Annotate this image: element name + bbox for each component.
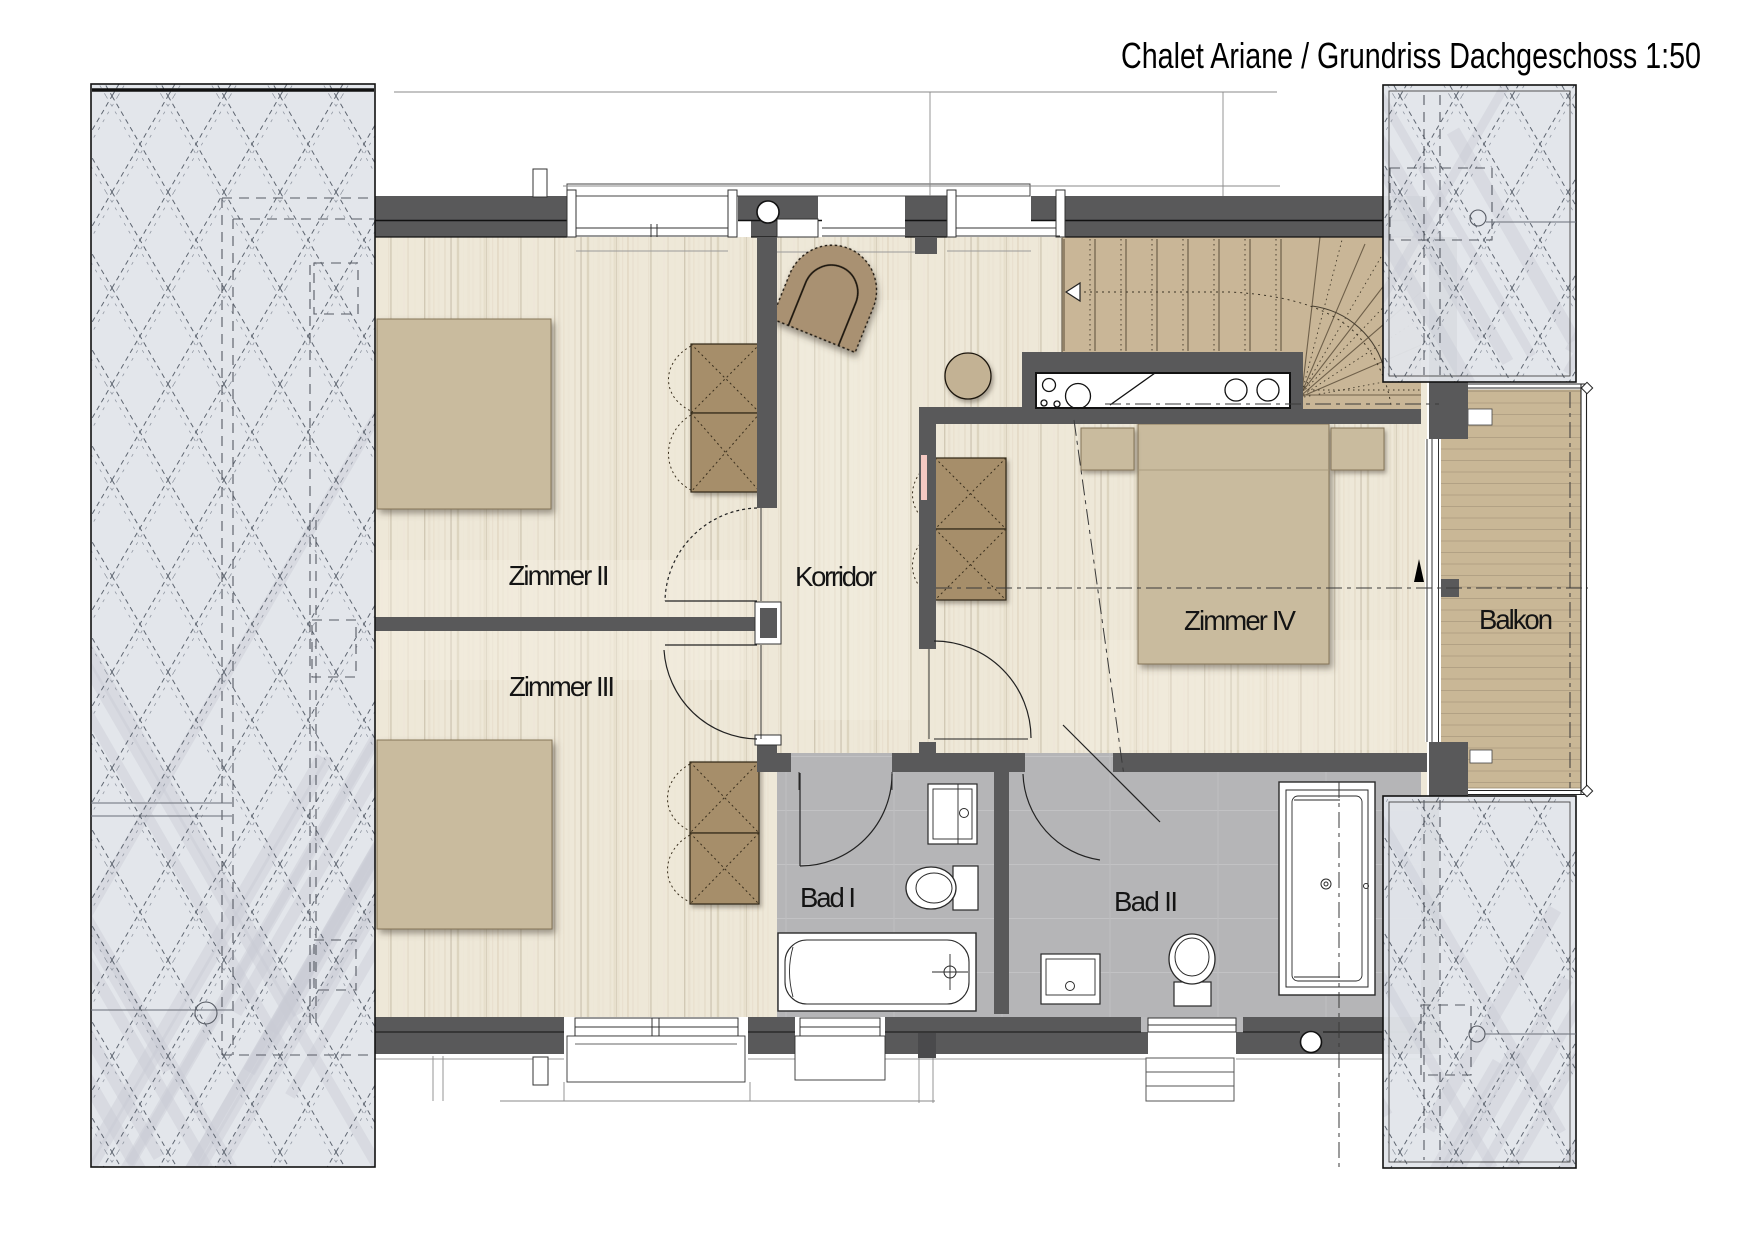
- svg-text:Zimmer IV: Zimmer IV: [1184, 605, 1297, 636]
- svg-text:Bad I: Bad I: [800, 882, 856, 913]
- svg-text:Korridor: Korridor: [795, 561, 877, 592]
- svg-text:Bad II: Bad II: [1114, 886, 1178, 917]
- svg-text:Zimmer III: Zimmer III: [509, 671, 615, 702]
- svg-text:Zimmer II: Zimmer II: [509, 560, 610, 591]
- svg-text:Balkon: Balkon: [1479, 604, 1553, 635]
- svg-text:Chalet Ariane / Grundriss Dach: Chalet Ariane / Grundriss Dachgeschoss 1…: [1121, 35, 1701, 76]
